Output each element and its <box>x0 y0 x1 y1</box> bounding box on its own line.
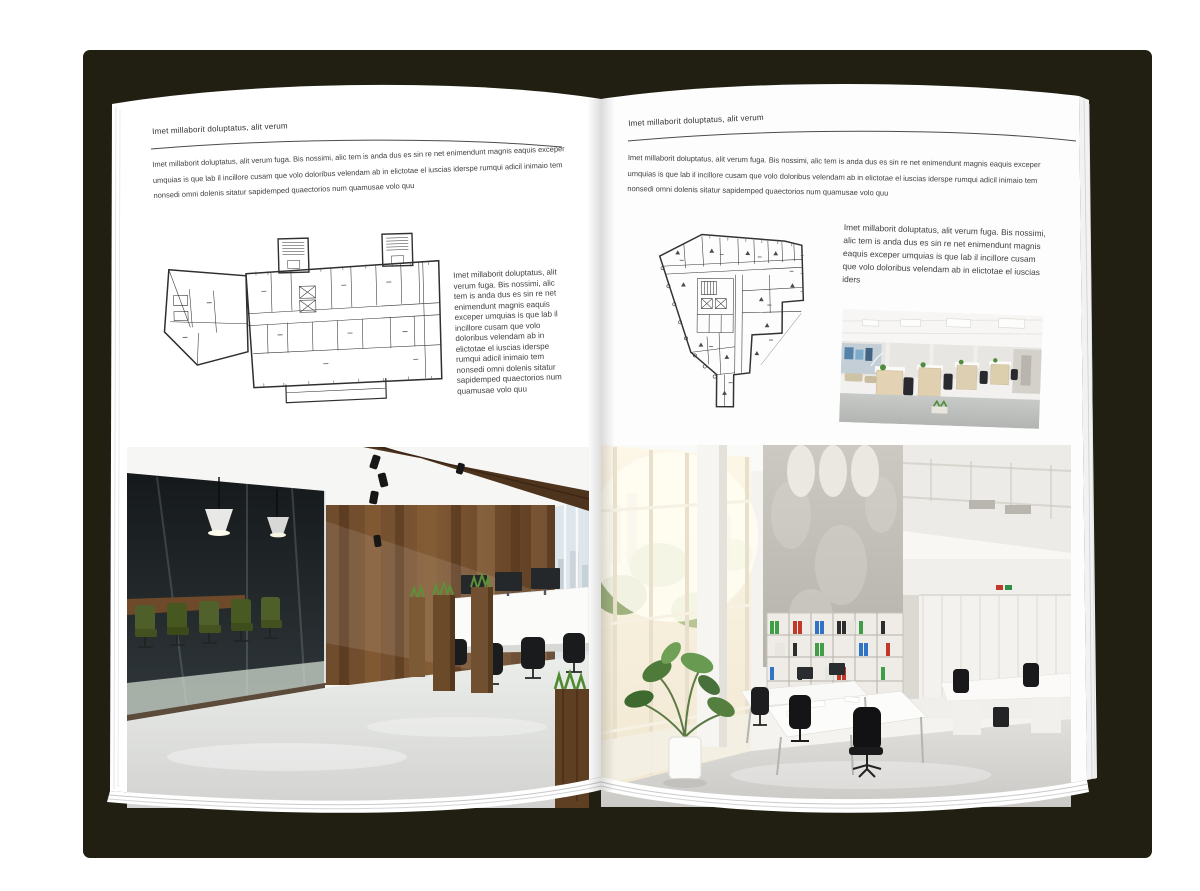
floor-plan-figure-left <box>160 231 444 410</box>
office-photo-dark-glass-meeting-room <box>127 447 589 808</box>
floor-plan-figure-right <box>648 224 815 421</box>
side-paragraph: Imet millaborit doluptatus, alit verum f… <box>453 267 571 397</box>
side-paragraph: Imet millaborit doluptatus, alit verum f… <box>842 221 1050 292</box>
book-mockup: Imet millaborit doluptatus, alit verum I… <box>0 0 1200 891</box>
office-photo-white-workstations <box>839 309 1043 429</box>
intro-paragraph: Imet millaborit doluptatus, alit verum f… <box>627 150 1046 204</box>
office-photo-bright-loft <box>601 445 1071 807</box>
